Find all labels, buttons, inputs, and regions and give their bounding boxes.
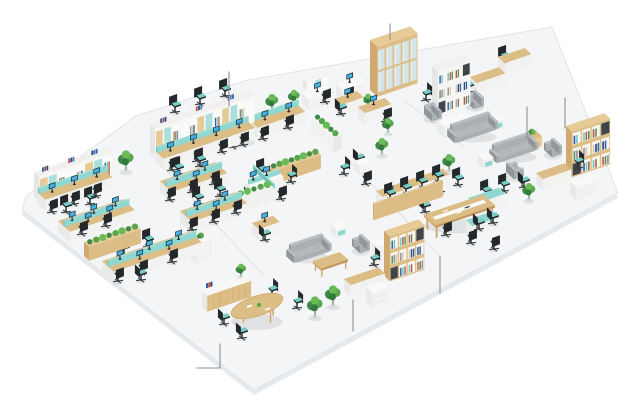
office-floorplan-render [0, 0, 635, 400]
bookshelf [432, 55, 470, 115]
office-chair [194, 86, 206, 107]
isometric-office-scene [0, 0, 635, 400]
office-chair [169, 94, 181, 115]
